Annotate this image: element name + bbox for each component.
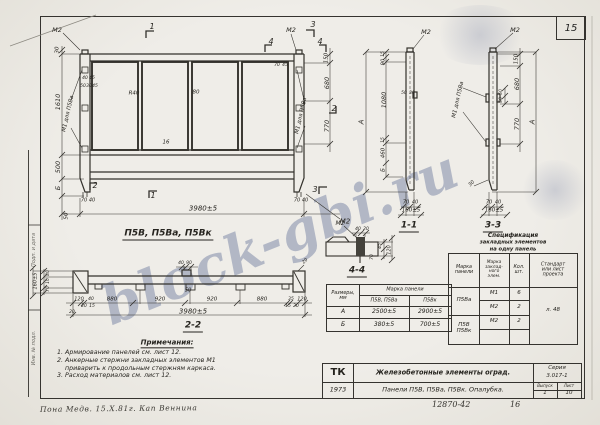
- dim-label: 2: [92, 182, 97, 190]
- note-line-1: 1. Армирование панелей см. лист 12.: [57, 349, 181, 356]
- title-block: ТК Железобетонные элементы оград. Серия …: [322, 363, 582, 399]
- dim-label: 50: [500, 97, 505, 103]
- document-sheet-number: 16: [510, 400, 520, 409]
- dim-label: Б: [55, 186, 62, 190]
- dim-label: 30: [55, 47, 61, 54]
- dim-label: 680: [514, 78, 521, 90]
- dim-label: 40: [88, 298, 94, 303]
- dim-label: 920: [155, 297, 166, 303]
- dim-label: 880: [107, 297, 118, 303]
- notes-title: Примечания:: [141, 339, 194, 348]
- dim-label: 40: [355, 228, 361, 233]
- dim-label: 4: [268, 38, 273, 46]
- note-line-2: 2. Анкерные стержни закладных элементов …: [57, 357, 216, 364]
- spec-col-header-qty: Кол. шт.: [514, 265, 525, 275]
- series-label: Серия: [548, 366, 566, 372]
- dim-label: 1: [149, 23, 154, 31]
- dim-label: 70: [274, 64, 280, 69]
- drawing-sheet: block-gbi.ru Подп. и дата Инв. № подл. 1…: [0, 0, 600, 425]
- dim-label: 50: [64, 213, 70, 220]
- dim-label: 15: [89, 305, 95, 310]
- dim-label: 50: [401, 92, 407, 97]
- dim-label: 1610: [55, 94, 62, 111]
- spec-qty-m2b: 2: [517, 319, 521, 325]
- dim-label: 160±5: [402, 208, 421, 214]
- dim-label: 70: [486, 201, 492, 206]
- dim-label: 160±5: [34, 273, 39, 290]
- dim-label: 15: [285, 305, 291, 310]
- spec-qty-m2a: 2: [517, 305, 521, 311]
- dim-label: 70: [371, 254, 376, 260]
- dim-label: А: [359, 120, 366, 125]
- dim-label: 3980±5: [189, 206, 217, 213]
- dim-label: 920: [207, 297, 218, 303]
- panel-dimensions-table: Размеры, мм Марка панели П5В, П5Ва П5Вк …: [326, 284, 452, 332]
- dims-subheader-1: П5В, П5Ва: [371, 298, 398, 303]
- spec-col-header-panel: Марка панели: [455, 265, 473, 275]
- dim-label: 80: [47, 270, 52, 276]
- dim-label: 3: [312, 186, 317, 194]
- dim-label: 10: [47, 278, 52, 284]
- dim-label: 70: [294, 199, 300, 204]
- dim-label: 40: [495, 201, 501, 206]
- dim-label: 3980±5: [179, 309, 207, 316]
- dim-label: 40: [89, 199, 95, 204]
- dim-label: М2: [336, 221, 345, 227]
- dim-label: 35: [288, 298, 294, 303]
- dim-label: 4: [317, 38, 322, 46]
- sheet-number: 10: [566, 391, 573, 397]
- drawing-title: Железобетонные элементы оград.: [376, 370, 510, 377]
- section-caption: 2-2: [183, 322, 203, 333]
- dim-label: 40: [178, 262, 184, 267]
- dim-label: 770: [514, 118, 521, 130]
- dim-label: 500: [55, 161, 62, 173]
- dim-label: 160±5: [485, 208, 504, 214]
- spec-standard-ref: л. 48: [546, 308, 560, 314]
- issue-number: 1: [543, 391, 547, 397]
- dim-label: 3: [310, 21, 315, 29]
- dim-label: 80: [193, 90, 200, 96]
- section-caption: 4-4: [347, 267, 367, 278]
- dim-label: 120: [388, 245, 393, 255]
- org-stamp: ТК: [331, 368, 346, 379]
- dims-row-a-v1: 2500±5: [372, 309, 396, 315]
- dim-label: 30: [409, 92, 415, 97]
- dim-label: 150: [324, 53, 330, 64]
- section-caption: П5В, П5Ва, П5Вк: [122, 230, 213, 241]
- spec-mark-m1: М1: [490, 291, 498, 297]
- year: 1973: [330, 387, 347, 394]
- dim-label: 15: [382, 137, 387, 143]
- dim-label: 1080: [381, 92, 388, 109]
- dims-header: Марка панели: [386, 287, 423, 292]
- dim-label: 150: [514, 54, 520, 65]
- dim-label: 50: [185, 289, 191, 294]
- spec-panel-p5va: П5Ва: [457, 298, 472, 304]
- dims-corner-header: Размеры, мм: [331, 291, 354, 301]
- dim-label: 40: [302, 199, 308, 204]
- dim-label: 45: [92, 85, 98, 90]
- dim-label: А: [530, 120, 537, 125]
- dim-label: М2: [421, 29, 431, 36]
- spec-col-header-standard: Стандарт или лист проекта: [541, 262, 565, 277]
- dim-label: 40: [412, 201, 418, 206]
- series-number: 3.017-1: [546, 374, 567, 380]
- spec-title-line1: Спецификация: [488, 233, 538, 239]
- dim-label: 45: [379, 243, 384, 249]
- dim-label: 880: [257, 297, 268, 303]
- dim-label: 70: [81, 199, 87, 204]
- note-line-2b: приварить к продольным стержням каркаса.: [57, 365, 216, 372]
- dim-label: 20: [81, 305, 87, 310]
- dim-label: 20: [69, 311, 75, 316]
- dim-label: 680: [324, 77, 331, 89]
- document-number: 12870-42: [432, 400, 470, 409]
- dim-label: М2: [52, 27, 62, 34]
- dim-label: 50: [500, 89, 505, 95]
- dim-label: 120: [297, 298, 307, 303]
- dim-label: 40: [82, 77, 88, 82]
- dim-label: 1: [150, 192, 155, 200]
- dim-label: 70: [403, 201, 409, 206]
- dim-label: 30: [86, 85, 92, 90]
- dims-row-a-v2: 2900±5: [418, 309, 442, 315]
- spec-col-header-element: Марка заклад- ного элем.: [485, 261, 503, 280]
- dim-label: 460: [381, 148, 387, 159]
- dims-row-a-label: А: [341, 309, 345, 315]
- dim-label: М2: [510, 27, 520, 34]
- dim-label: 50: [80, 85, 86, 90]
- spec-title-line3: на одну панель: [490, 247, 537, 252]
- dim-label: 120: [74, 298, 84, 303]
- dim-label: 2: [331, 105, 336, 113]
- dim-label: Б: [381, 168, 387, 172]
- dim-label: 90: [186, 262, 192, 267]
- dim-label: 70: [47, 286, 52, 292]
- dim-label: R40: [129, 91, 140, 97]
- dim-label: 20: [363, 228, 369, 233]
- dims-subheader-2: П5Вк: [423, 298, 436, 303]
- dim-label: 16: [163, 140, 170, 146]
- sheet-label: Лист: [564, 384, 574, 388]
- note-line-3: 3. Расход материалов см. лист 12.: [57, 372, 171, 379]
- dims-row-b-label: Б: [341, 322, 345, 328]
- section-caption: 1-1: [399, 222, 419, 233]
- handwritten-note: Пона Медв. 15.Х.81г. Кап Веннина: [40, 403, 197, 414]
- spec-mark-m2a: М2: [490, 305, 498, 311]
- section-caption: 3-3: [483, 222, 503, 233]
- dim-label: М2: [286, 27, 296, 34]
- spec-qty-m1: 6: [517, 291, 521, 297]
- dim-label: 20: [293, 305, 299, 310]
- drawing-subtitle: Панели П5В, П5Ва, П5Вк. Опалубка.: [382, 387, 504, 394]
- spec-panel-p5v-p5vk: П5В П5Вк: [457, 323, 472, 335]
- dim-label: 770: [324, 120, 331, 132]
- dim-label: 45: [282, 64, 288, 69]
- dim-label: 15: [382, 51, 387, 57]
- spec-mark-m2b: М2: [490, 319, 498, 325]
- dims-row-b-v1: 380±5: [374, 322, 394, 328]
- dims-row-b-v2: 700±5: [420, 322, 440, 328]
- dim-label: 45: [89, 77, 95, 82]
- issue-label: Выпуск: [537, 384, 553, 388]
- spec-table: Марка панели Марка заклад- ного элем. Ко…: [448, 253, 578, 345]
- dim-label: 90: [382, 59, 387, 65]
